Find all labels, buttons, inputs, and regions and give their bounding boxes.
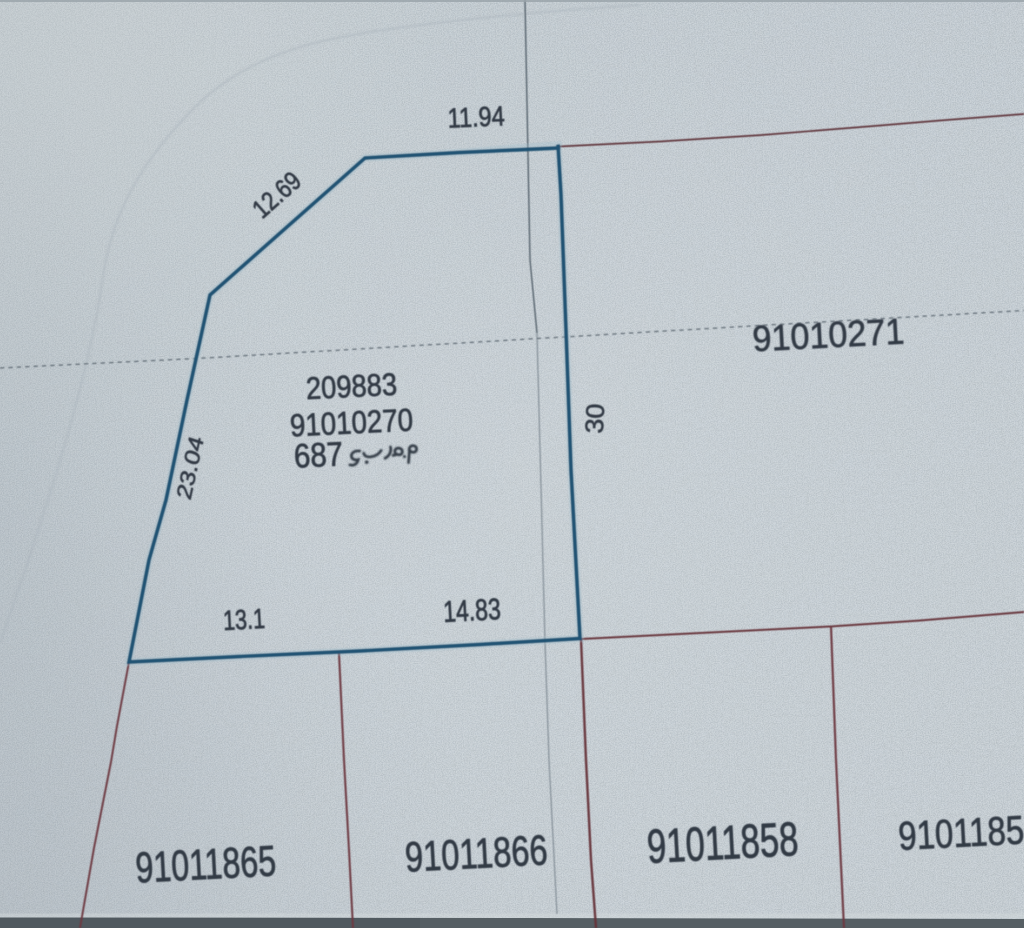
svg-text:687: 687 (293, 434, 344, 475)
svg-text:11.94: 11.94 (447, 102, 505, 135)
svg-text:91011858: 91011858 (646, 812, 800, 874)
svg-text:30: 30 (579, 403, 610, 434)
svg-text:13.1: 13.1 (222, 603, 265, 637)
svg-text:91011857: 91011857 (897, 806, 1024, 858)
svg-text:209883: 209883 (305, 367, 398, 407)
svg-text:91011866: 91011866 (404, 827, 549, 881)
svg-text:14.83: 14.83 (442, 592, 501, 629)
svg-text:91011865: 91011865 (134, 838, 277, 893)
svg-text:91010271: 91010271 (751, 312, 905, 360)
